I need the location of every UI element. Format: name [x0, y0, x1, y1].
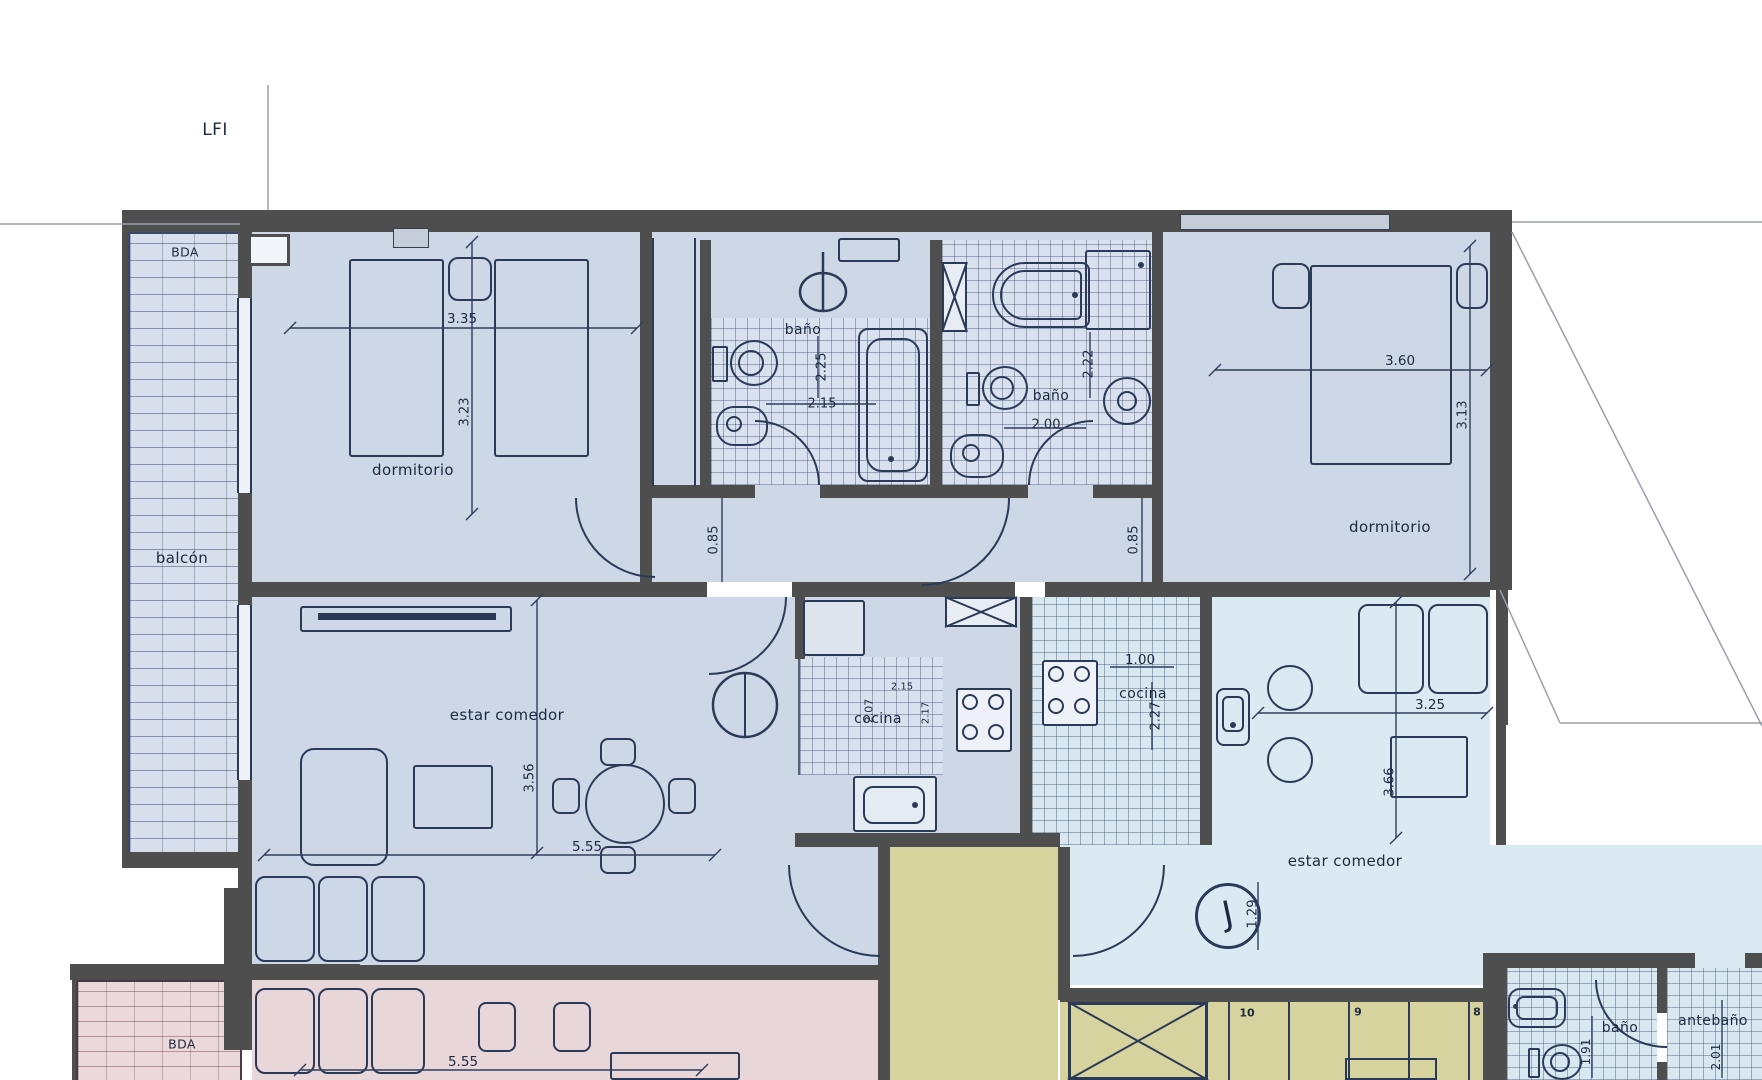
armchair — [318, 988, 368, 1074]
coffee-table — [1390, 736, 1468, 798]
room-label-kitchen-left: cocina — [854, 711, 902, 727]
dimension-label: 3.35 — [447, 311, 477, 327]
toilet — [966, 372, 980, 406]
wall — [930, 240, 942, 485]
bathtub — [866, 338, 920, 472]
toilet — [1528, 1048, 1540, 1078]
stair-step-number: 9 — [1354, 1006, 1362, 1019]
vanity-faucet — [1138, 262, 1144, 268]
dimension-label: 5.55 — [572, 839, 602, 855]
armchair — [318, 876, 368, 962]
nightstand — [1456, 263, 1488, 309]
stair-step — [1408, 1002, 1410, 1080]
wall — [122, 852, 252, 868]
dimension-label: 0.85 — [707, 526, 722, 555]
dimension-label: 2.07 — [863, 699, 876, 724]
stove-burner — [1048, 666, 1064, 682]
dimension-label: 3.25 — [1415, 697, 1445, 713]
wall — [642, 582, 707, 597]
dimension-label: 1.00 — [1125, 652, 1155, 668]
stair-step — [1348, 1002, 1350, 1080]
wall — [1058, 847, 1070, 1000]
wall — [792, 582, 1015, 597]
wall — [820, 485, 1028, 498]
wall — [1483, 953, 1695, 968]
dimension-label: 2.01 — [1709, 1044, 1723, 1071]
wall — [700, 240, 711, 485]
wall — [1496, 590, 1508, 725]
chair — [600, 846, 636, 874]
stove-burner — [988, 694, 1004, 710]
chair — [600, 738, 636, 766]
wall — [252, 965, 878, 980]
dimension-label: 3.56 — [523, 764, 538, 793]
wall — [1200, 597, 1212, 845]
vent-shaft — [942, 262, 967, 332]
hallway — [652, 498, 1163, 582]
toilet — [1550, 1052, 1570, 1072]
stair-step-number: 8 — [1473, 1006, 1481, 1019]
dimension-label: 3.66 — [1383, 768, 1398, 797]
wall — [1483, 953, 1507, 1080]
window — [1180, 214, 1390, 230]
double-bed — [1310, 265, 1452, 465]
stove-burner — [962, 724, 978, 740]
dimension-label: 1.29 — [1246, 900, 1261, 929]
window — [237, 605, 252, 780]
site-boundary-label: LFI — [202, 120, 227, 140]
armchair — [1428, 604, 1488, 694]
room-label-living-right: estar comedor — [1288, 852, 1402, 870]
washbasin — [1516, 996, 1558, 1020]
dimension-label: 2.00 — [1032, 418, 1061, 433]
room-label-ante-bathroom: antebaño — [1678, 1013, 1748, 1029]
wall — [1152, 232, 1163, 582]
wall — [1160, 582, 1490, 597]
dimension-label: 3.13 — [1456, 401, 1471, 430]
balcony-label: balcón — [156, 549, 208, 567]
wall — [252, 582, 642, 597]
armchair — [1358, 604, 1424, 694]
room-label-bedroom-right: dormitorio — [1349, 518, 1431, 536]
bathtub-drain — [888, 456, 894, 462]
armchair — [255, 876, 315, 962]
coffee-table — [413, 765, 493, 829]
dimension-label: 2.15 — [808, 397, 837, 412]
chair — [1267, 737, 1313, 783]
nightstand — [448, 257, 492, 301]
bed — [349, 259, 444, 457]
chair — [553, 1002, 591, 1052]
bathtub — [1000, 270, 1082, 320]
wall — [1060, 988, 1485, 1002]
window — [393, 228, 429, 248]
vent-shaft — [945, 597, 1017, 627]
room-label-living-left: estar comedor — [450, 706, 564, 724]
table — [610, 1052, 740, 1080]
bed — [494, 259, 589, 457]
washbasin — [1117, 391, 1137, 411]
closet — [652, 238, 696, 486]
chair — [1267, 665, 1313, 711]
armchair — [371, 988, 425, 1074]
stair-landing — [1345, 1058, 1437, 1080]
room-label-bathroom-1: baño — [785, 322, 822, 338]
wall — [1657, 1062, 1667, 1080]
kitchen-counter — [803, 600, 865, 656]
bidet — [962, 444, 980, 462]
sideboard — [318, 613, 496, 620]
toilet — [712, 346, 728, 382]
bidet — [716, 406, 768, 446]
wall — [1496, 725, 1506, 845]
floor-plan: LFI BDA balcón dormitorio dormitorio bañ… — [0, 0, 1762, 1080]
sink-drain — [912, 802, 918, 808]
room-label-bathroom-2: baño — [1033, 388, 1070, 404]
wall — [1020, 597, 1032, 845]
toilet — [738, 350, 764, 376]
dining-table — [585, 764, 665, 844]
wall-niche — [248, 234, 290, 266]
chair — [478, 1002, 516, 1052]
stove-burner — [1074, 698, 1090, 714]
balcony-top — [128, 232, 242, 858]
bathtub-drain — [1072, 292, 1078, 298]
wall — [1045, 582, 1160, 597]
appliance-dot — [1230, 722, 1236, 728]
common-landing — [890, 847, 1058, 1080]
dimension-label: 1.91 — [1579, 1039, 1593, 1066]
dimension-label: 2.17 — [921, 702, 932, 724]
nightstand — [1272, 263, 1310, 309]
dimension-label: 2.27 — [1149, 702, 1164, 731]
wall — [1093, 485, 1163, 498]
stove-burner — [1048, 698, 1064, 714]
room-label-kitchen-right: cocina — [1119, 686, 1167, 702]
balcony-code-label: BDA — [171, 245, 199, 260]
dimension-label: 0.85 — [1127, 526, 1142, 555]
bathroom-cabinet — [838, 238, 900, 262]
dimension-label: 3.60 — [1385, 353, 1415, 369]
sofa — [300, 748, 388, 866]
dimension-label: 2.15 — [891, 682, 913, 693]
wall — [640, 485, 755, 498]
stair-step — [1468, 1002, 1470, 1080]
dimension-label: 2.25 — [815, 353, 830, 382]
stair-step — [1228, 1002, 1230, 1080]
dimension-label: 3.23 — [458, 398, 473, 427]
chair — [552, 778, 580, 814]
armchair — [371, 876, 425, 962]
balcony-bottom — [76, 980, 242, 1080]
stove-burner — [1074, 666, 1090, 682]
room-label-bathroom-3: baño — [1602, 1020, 1639, 1036]
toilet — [990, 376, 1014, 400]
dimension-label: 5.55 — [448, 1054, 478, 1070]
stair-step-number: 10 — [1239, 1007, 1254, 1020]
wall — [1490, 210, 1512, 590]
wall — [1745, 953, 1762, 968]
wall — [795, 833, 1060, 847]
chair — [668, 778, 696, 814]
basin-faucet — [1513, 1004, 1518, 1009]
balcony-code-label-bottom: BDA — [168, 1037, 196, 1052]
stove-burner — [988, 724, 1004, 740]
bidet — [726, 416, 742, 432]
stove-burner — [962, 694, 978, 710]
wall — [72, 980, 76, 1080]
stair-step — [1288, 1002, 1290, 1080]
dimension-label: 2.22 — [1082, 350, 1097, 379]
room-label-bedroom-left: dormitorio — [372, 461, 454, 479]
wall — [122, 232, 128, 858]
window — [237, 298, 252, 493]
elevator-shaft — [1068, 1002, 1208, 1080]
armchair — [255, 988, 315, 1074]
